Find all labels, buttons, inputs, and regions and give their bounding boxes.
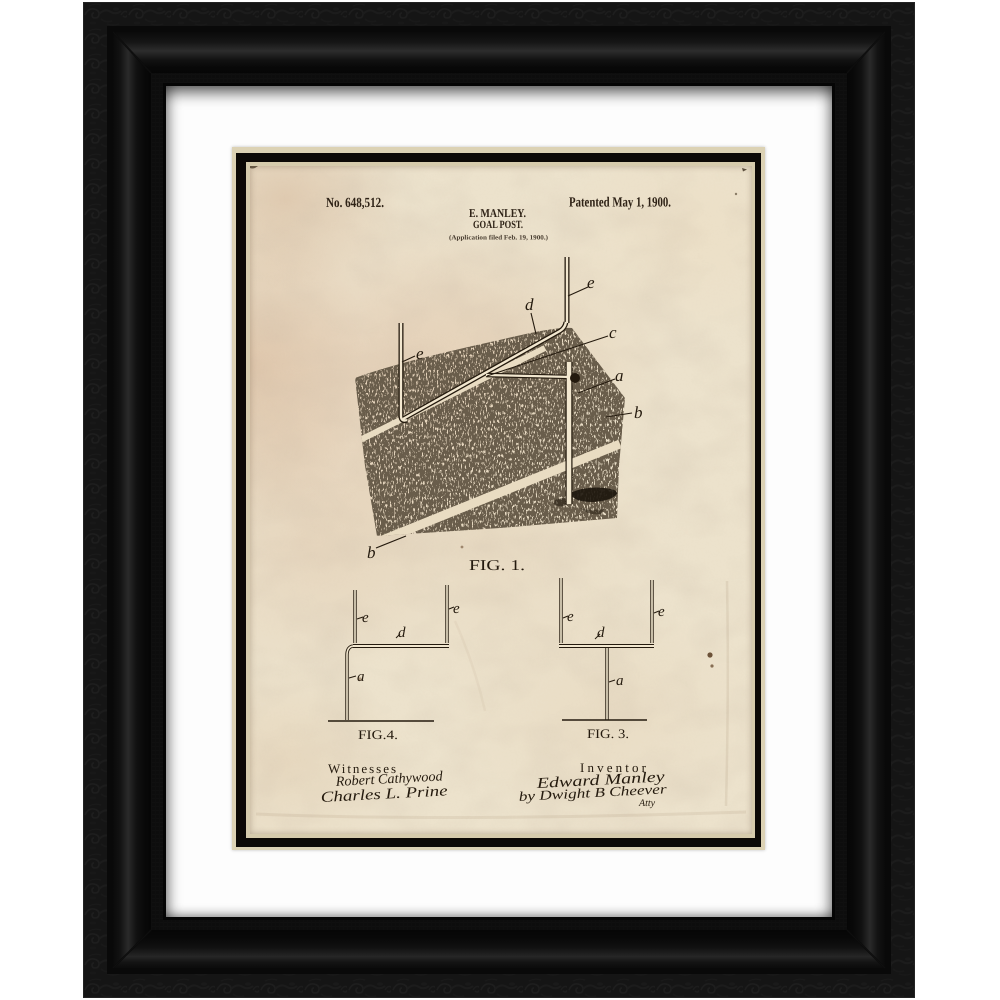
svg-text:d: d — [398, 625, 406, 641]
svg-text:e: e — [416, 344, 424, 363]
svg-text:a: a — [357, 669, 365, 685]
svg-text:a: a — [615, 366, 624, 385]
svg-text:GOAL POST.: GOAL POST. — [473, 219, 523, 231]
svg-text:FIG. 1.: FIG. 1. — [469, 558, 525, 574]
svg-text:Atty: Atty — [638, 798, 656, 809]
svg-text:Patented May 1, 1900.: Patented May 1, 1900. — [569, 196, 671, 211]
svg-text:c: c — [609, 323, 617, 342]
svg-text:e: e — [658, 604, 665, 620]
svg-text:d: d — [525, 295, 534, 314]
svg-text:E. MANLEY.: E. MANLEY. — [469, 206, 526, 220]
svg-text:e: e — [453, 601, 460, 617]
svg-text:b: b — [367, 543, 376, 562]
svg-text:No. 648,512.: No. 648,512. — [326, 196, 384, 211]
svg-text:e: e — [362, 610, 369, 626]
svg-text:(Application filed Feb. 19, 19: (Application filed Feb. 19, 1900.) — [449, 235, 548, 242]
svg-text:e: e — [587, 273, 595, 292]
svg-text:d: d — [597, 625, 605, 641]
svg-text:FIG.4.: FIG.4. — [358, 727, 398, 742]
svg-text:FIG. 3.: FIG. 3. — [587, 726, 629, 741]
svg-text:e: e — [567, 609, 574, 625]
svg-text:a: a — [616, 673, 624, 689]
svg-text:b: b — [634, 403, 643, 422]
